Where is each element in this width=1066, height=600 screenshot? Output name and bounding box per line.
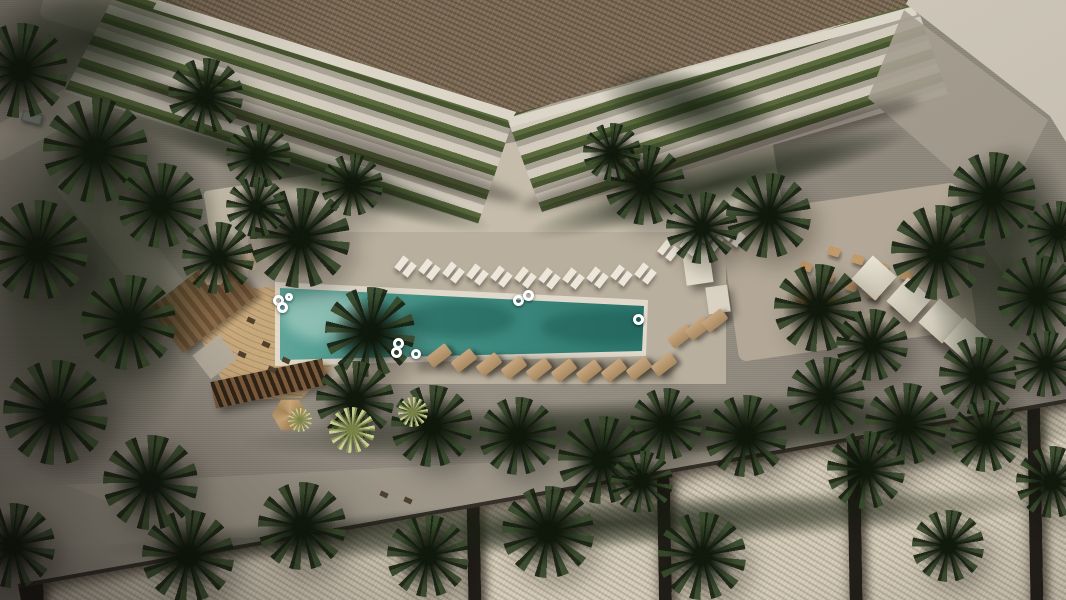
hotspot-marker[interactable] — [285, 293, 293, 301]
hotspot-marker[interactable] — [633, 314, 644, 325]
hotspot-marker[interactable] — [391, 347, 402, 358]
aerial-resort-render — [0, 0, 1066, 600]
hotspot-marker[interactable] — [411, 349, 421, 359]
vignette-overlay — [0, 0, 1066, 600]
hotspot-marker[interactable] — [277, 302, 288, 313]
hotspot-marker[interactable] — [513, 295, 524, 306]
hotspot-marker[interactable] — [523, 290, 534, 301]
